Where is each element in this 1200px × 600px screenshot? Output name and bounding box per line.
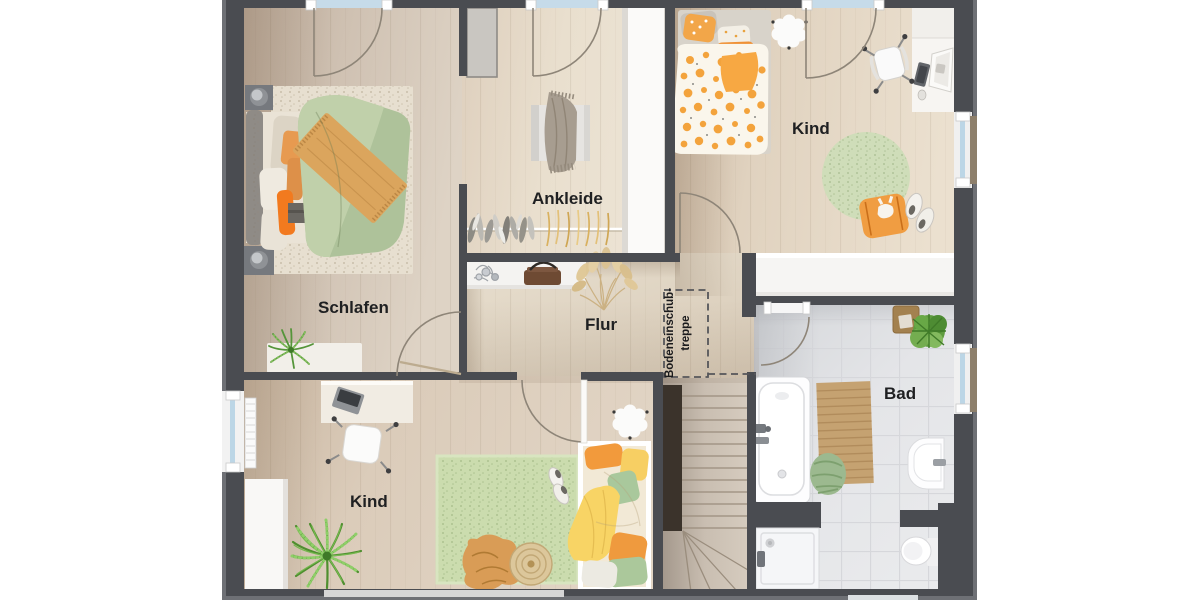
svg-text:treppe: treppe (680, 315, 692, 350)
svg-text:Kind: Kind (792, 119, 830, 138)
svg-text:Kind: Kind (350, 492, 388, 511)
svg-text:Bad: Bad (884, 384, 916, 403)
svg-text:Schlafen: Schlafen (318, 298, 389, 317)
svg-text:Ankleide: Ankleide (532, 189, 603, 208)
svg-text:Bodeneinschub-: Bodeneinschub- (664, 288, 676, 378)
svg-text:Flur: Flur (585, 315, 617, 334)
